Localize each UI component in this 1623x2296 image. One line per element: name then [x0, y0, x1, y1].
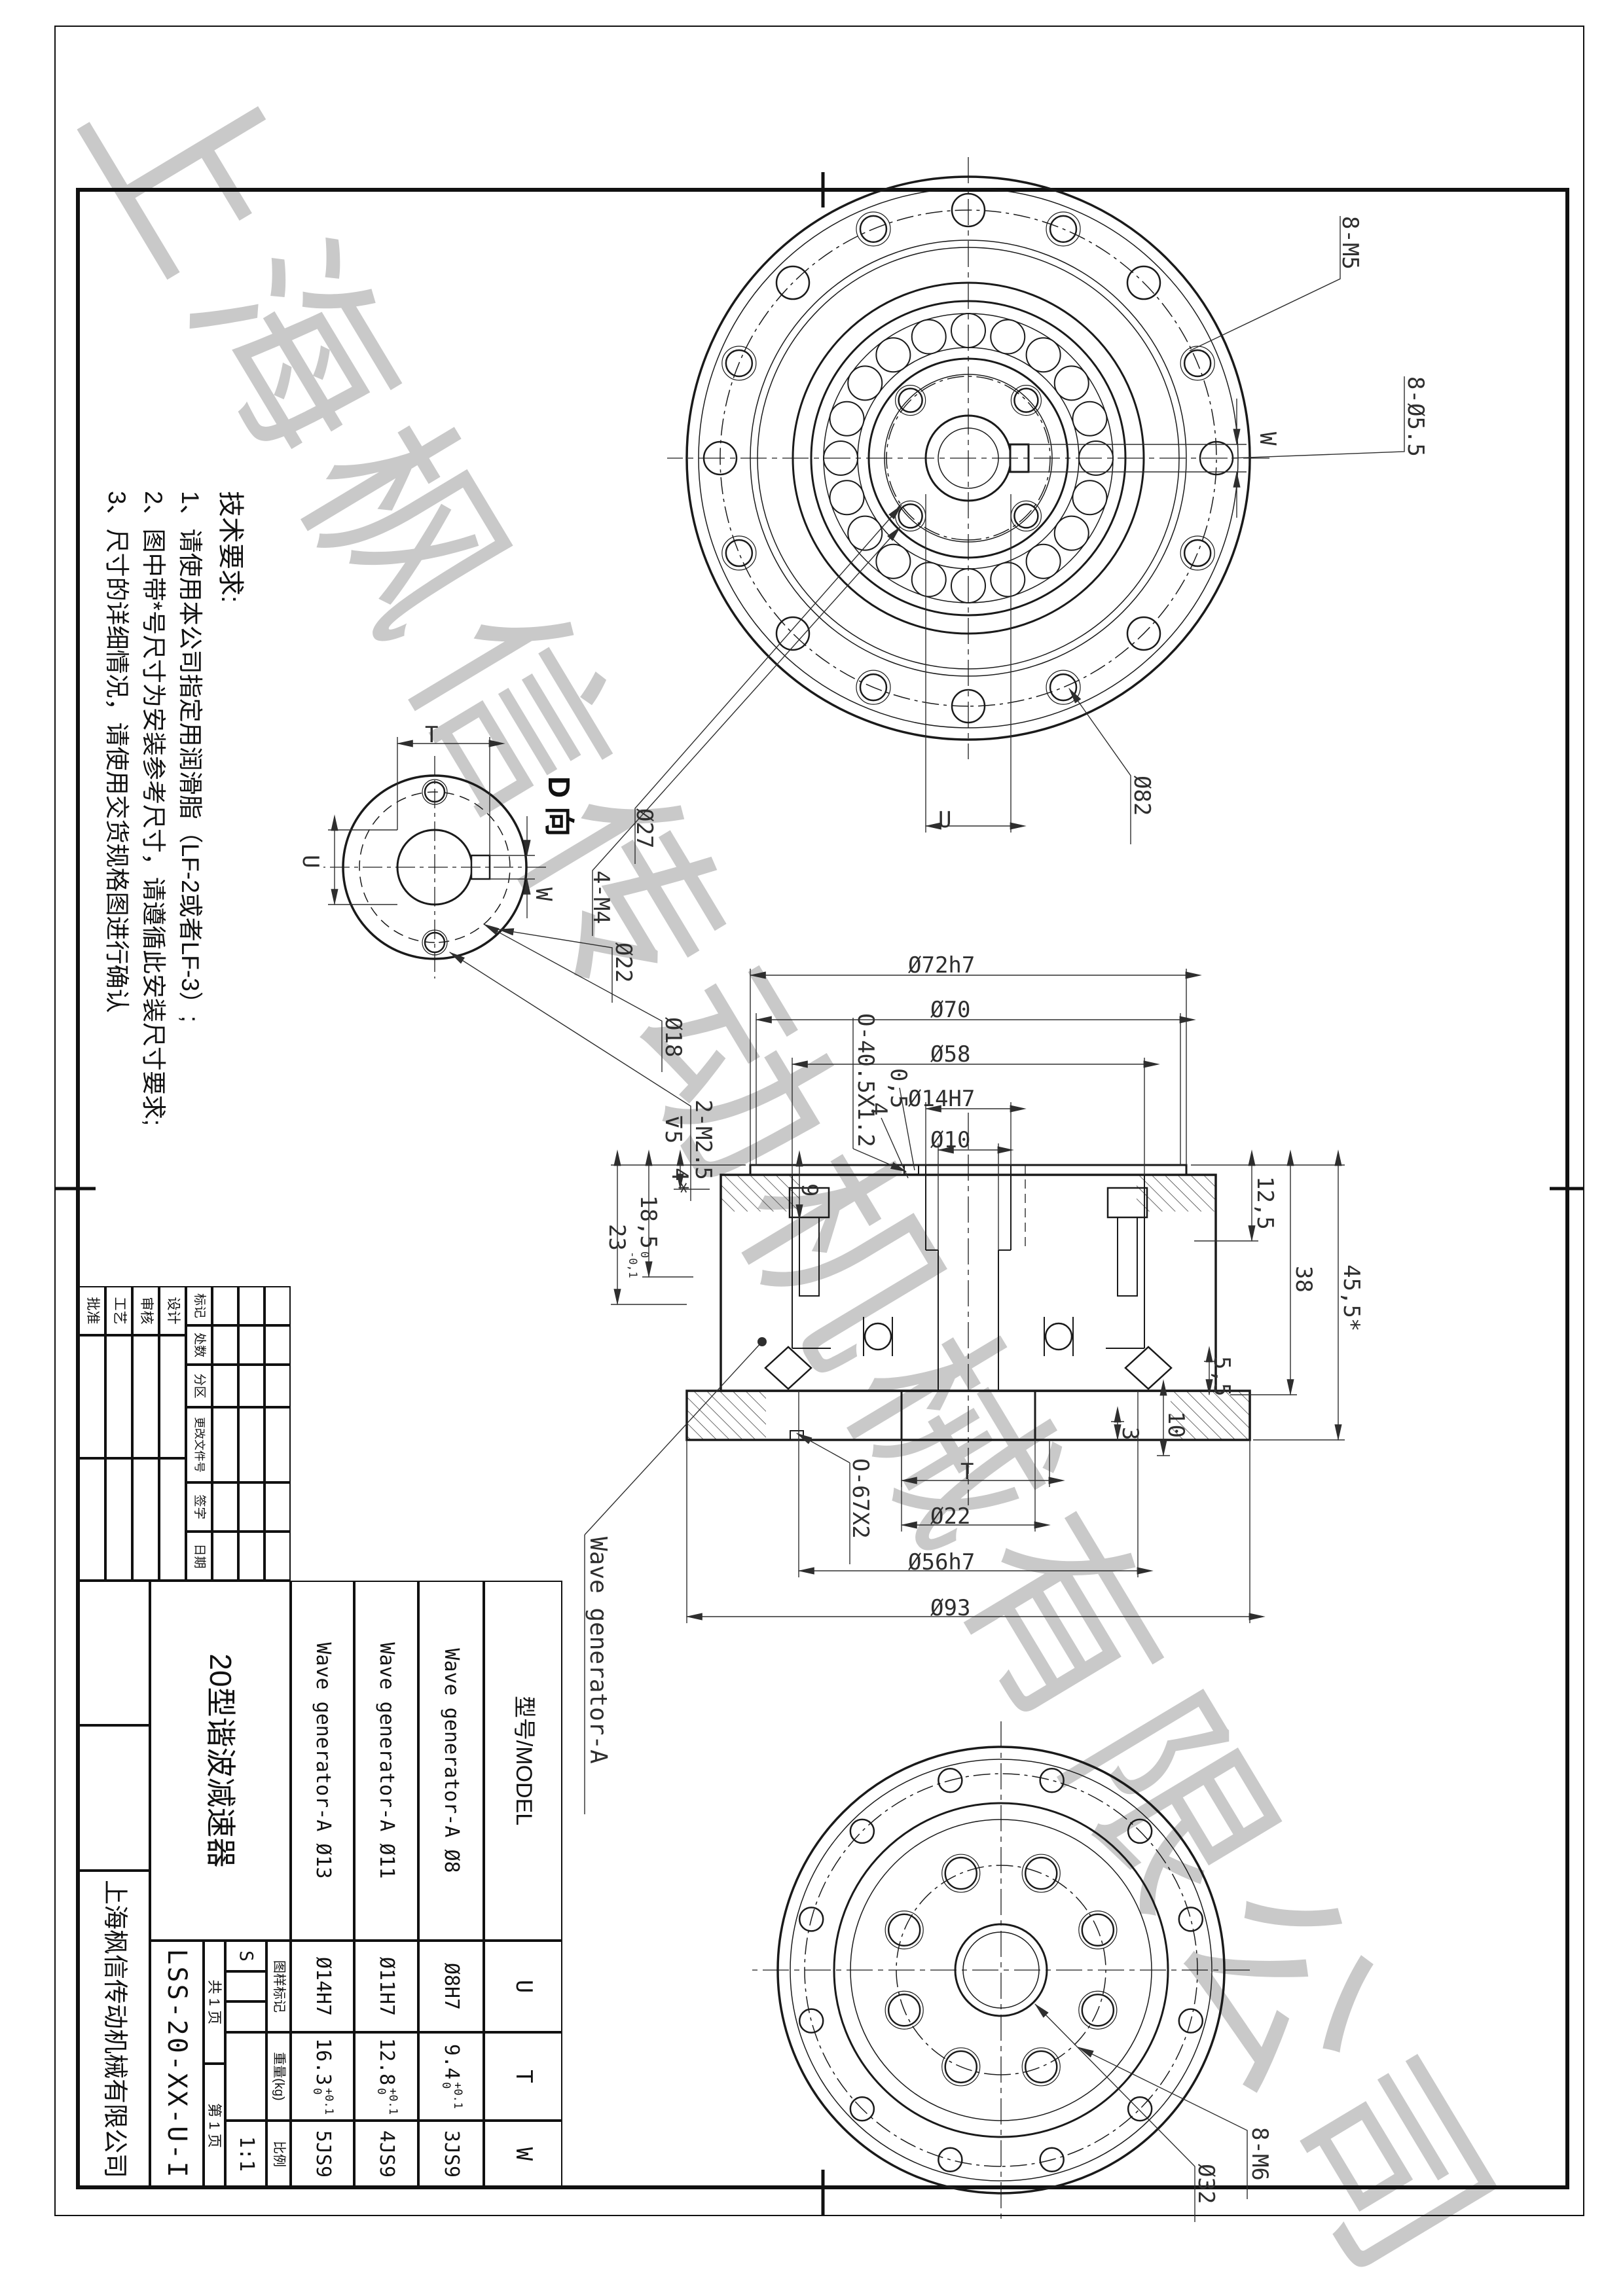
model-table-cell: 4JS9	[354, 2121, 418, 2187]
weight-label-cell: 重量(kg)	[266, 2032, 291, 2121]
model-table-cell: 3JS9	[418, 2121, 484, 2187]
model-table-cell: 12.8+0.10	[354, 2032, 418, 2121]
dim-label: Ø70	[930, 999, 970, 1021]
revision-empty-cell	[212, 1286, 238, 1325]
revision-header-cell: 签字	[186, 1482, 212, 1532]
dim-label: Ø93	[930, 1597, 970, 1619]
signature-empty-cell	[132, 1335, 159, 1458]
scale-label-cell: 比例	[266, 2121, 291, 2187]
dim-label: 23	[606, 1224, 628, 1251]
dim-label: Ø22	[612, 942, 634, 982]
model-table-cell: 5JS9	[291, 2121, 354, 2187]
dim-label: Wave generator-A	[586, 1537, 610, 1764]
dim-label: U	[299, 855, 321, 868]
revision-empty-cell	[264, 1365, 291, 1407]
revision-header-cell: 更改文件号	[186, 1407, 212, 1482]
tech-requirement-item: 1、请使用本公司指定用润滑脂（LF-2或者LF-3）;	[175, 491, 210, 1022]
model-table-cell: Wave generator-A Ø13	[291, 1581, 354, 1941]
revision-empty-cell	[238, 1407, 264, 1482]
dim-label: 10	[1165, 1411, 1187, 1438]
dim-label: W	[1256, 432, 1279, 445]
revision-empty-cell	[238, 1532, 264, 1581]
dim-label: 5,5	[1211, 1356, 1233, 1396]
dim-label: U	[938, 809, 951, 831]
dim-label: D 向	[544, 776, 574, 836]
dim-label: 8-M5	[1339, 216, 1361, 270]
revision-header-cell: 日期	[186, 1532, 212, 1581]
dim-label: Ø14H7	[908, 1088, 975, 1110]
revision-empty-cell	[238, 1482, 264, 1532]
model-table-cell: Wave generator-A Ø11	[354, 1581, 418, 1941]
revision-empty-cell	[212, 1532, 238, 1581]
stage-mark-label-cell: 图样标记	[266, 1941, 291, 2032]
dim-label: Ø72h7	[908, 954, 975, 977]
dim-label: Ø82	[1131, 776, 1153, 816]
dim-label: 4*	[668, 1168, 691, 1194]
signature-label-cell: 设计	[159, 1286, 186, 1335]
dim-label: 9	[798, 1183, 820, 1196]
model-table-header: 型号/MODEL	[484, 1581, 562, 1941]
model-table-header: U	[484, 1941, 562, 2032]
dim-label: 2-M2.5	[692, 1100, 714, 1180]
drawing-number-cell: LSS-20-XX-U-I	[150, 1941, 204, 2187]
dim-label: 4-M4	[590, 870, 612, 924]
scale-value-cell: 1:1	[225, 2121, 266, 2187]
revision-empty-cell	[264, 1325, 291, 1365]
dim-label: 3	[1119, 1427, 1141, 1440]
signature-empty-cell	[132, 1458, 159, 1581]
signature-label-cell: 批准	[79, 1286, 105, 1335]
stage-mark-cell	[225, 2001, 266, 2032]
signature-empty-cell	[79, 1458, 105, 1581]
section-view	[687, 1113, 1250, 1505]
revision-empty-cell	[212, 1325, 238, 1365]
tolerance: +0.10	[311, 2088, 335, 2115]
dim-label: Ø27	[633, 808, 655, 848]
revision-header-cell: 处数	[186, 1325, 212, 1365]
tech-requirements-title: 技术要求:	[214, 491, 252, 603]
dim-label: ⊽5	[662, 1114, 684, 1143]
sheet-total-cell: 共 1 页	[204, 1941, 225, 2064]
revision-empty-cell	[212, 1482, 238, 1532]
dim-label: 12,5	[1254, 1176, 1276, 1230]
signature-empty-cell	[105, 1335, 132, 1458]
sheet-number-cell: 第 1 页	[204, 2064, 225, 2187]
tolerance: 0-0,1	[626, 1251, 649, 1278]
revision-empty-cell	[238, 1325, 264, 1365]
dim-label: Ø32	[1195, 2164, 1217, 2204]
dim-label: Ø10	[930, 1129, 970, 1151]
d-direction-view	[323, 756, 546, 978]
model-table-cell: Wave generator-A Ø8	[418, 1581, 484, 1941]
dim-label: W	[532, 888, 555, 901]
revision-empty-cell	[212, 1407, 238, 1482]
model-table-cell: Ø11H7	[354, 1941, 418, 2032]
model-table-cell: Ø14H7	[291, 1941, 354, 2032]
stage-mark-cell	[225, 1971, 266, 2001]
tolerance: +0.10	[439, 2082, 463, 2109]
signature-empty-cell	[159, 1335, 186, 1458]
model-table-cell: Ø8H7	[418, 1941, 484, 2032]
model-table-cell: 16.3+0.10	[291, 2032, 354, 2121]
empty-cell	[79, 1581, 150, 1725]
dim-label: Ø18	[662, 1017, 684, 1057]
dim-label: 8-Ø5.5	[1404, 376, 1427, 457]
tolerance: +0.10	[374, 2088, 398, 2115]
revision-empty-cell	[264, 1482, 291, 1532]
model-table-cell: 9.4+0.10	[418, 2032, 484, 2121]
weight-value-cell	[225, 2032, 266, 2121]
signature-label-cell: 工艺	[105, 1286, 132, 1335]
tech-requirement-item: 3、尺寸的详细情况，请使用交货规格图进行确认	[101, 491, 137, 1013]
dim-label: 38	[1292, 1266, 1315, 1293]
dim-label: 18,50-0,1	[626, 1195, 659, 1278]
dim-label: O-67X2	[849, 1458, 871, 1539]
tech-requirement-item: 2、图中带*号尺寸为安装参考尺寸，请遵循此安装尺寸要求;	[138, 491, 173, 1126]
model-table-header: T	[484, 2032, 562, 2121]
revision-empty-cell	[238, 1365, 264, 1407]
signature-empty-cell	[105, 1458, 132, 1581]
rear-view	[752, 1721, 1250, 2219]
revision-empty-cell	[264, 1532, 291, 1581]
signature-empty-cell	[159, 1458, 186, 1581]
stage-mark-cell: S	[225, 1941, 266, 1971]
revision-empty-cell	[238, 1286, 264, 1325]
signature-empty-cell	[79, 1335, 105, 1458]
signature-label-cell: 审核	[132, 1286, 159, 1335]
model-table-header: W	[484, 2121, 562, 2187]
company-cell: 上海枫信传动机械有限公司	[79, 1871, 150, 2187]
empty-cell	[79, 1725, 150, 1871]
drawing-sheet: 上海枫信传动机械有限公司	[0, 0, 1623, 2296]
dim-label: Ø58	[930, 1043, 970, 1066]
dim-label: T	[960, 1461, 974, 1483]
revision-empty-cell	[212, 1365, 238, 1407]
part-name-cell: 20型谐波减速器	[150, 1581, 291, 1941]
drawing-page: 上海枫信传动机械有限公司	[0, 0, 1623, 2296]
revision-empty-cell	[264, 1407, 291, 1482]
dim-label: 8-M6	[1249, 2127, 1271, 2181]
dim-label: Ø56h7	[908, 1551, 975, 1573]
dim-label: O-40.5X1.2	[854, 1013, 877, 1147]
revision-header-cell: 标记	[186, 1286, 212, 1325]
dim-label: Ø22	[930, 1505, 970, 1528]
dim-label: 45,5*	[1340, 1265, 1362, 1331]
revision-header-cell: 分区	[186, 1365, 212, 1407]
dim-label: T	[425, 724, 438, 746]
revision-empty-cell	[264, 1286, 291, 1325]
